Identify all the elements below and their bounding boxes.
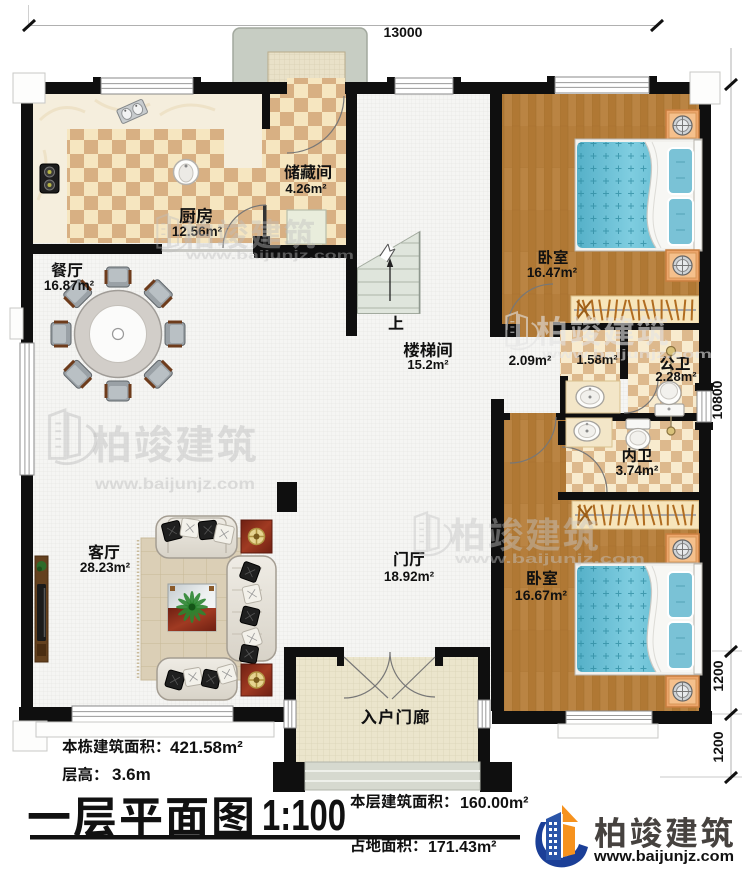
svg-text:13000: 13000 (384, 24, 423, 40)
svg-text:2.28m²: 2.28m² (655, 369, 697, 384)
svg-text:www.baijunjz.com: www.baijunjz.com (184, 248, 354, 262)
svg-text:3.6m: 3.6m (112, 765, 151, 784)
svg-text:16.87m²: 16.87m² (44, 278, 95, 293)
svg-text:www.baijunjz.com: www.baijunjz.com (540, 347, 712, 361)
svg-text:421.58m²: 421.58m² (170, 738, 243, 757)
svg-text:1:100: 1:100 (262, 791, 346, 840)
svg-text:1200: 1200 (710, 731, 726, 762)
svg-text:28.23m²: 28.23m² (80, 560, 131, 575)
svg-text:3.74m²: 3.74m² (616, 463, 659, 478)
svg-text:171.43m²: 171.43m² (428, 839, 497, 856)
svg-text:4.26m²: 4.26m² (285, 181, 327, 196)
svg-text:www.baijunjz.com: www.baijunjz.com (453, 551, 645, 566)
svg-text:www.baijunjz.com: www.baijunjz.com (94, 476, 255, 493)
svg-text:www.baijunjz.com: www.baijunjz.com (593, 848, 734, 865)
svg-text:1200: 1200 (710, 660, 726, 691)
svg-text:160.00m²: 160.00m² (460, 795, 529, 812)
svg-text:16.67m²: 16.67m² (515, 587, 567, 603)
svg-text:16.47m²: 16.47m² (527, 265, 578, 280)
svg-text:15.2m²: 15.2m² (407, 357, 449, 372)
svg-text:18.92m²: 18.92m² (384, 569, 435, 584)
